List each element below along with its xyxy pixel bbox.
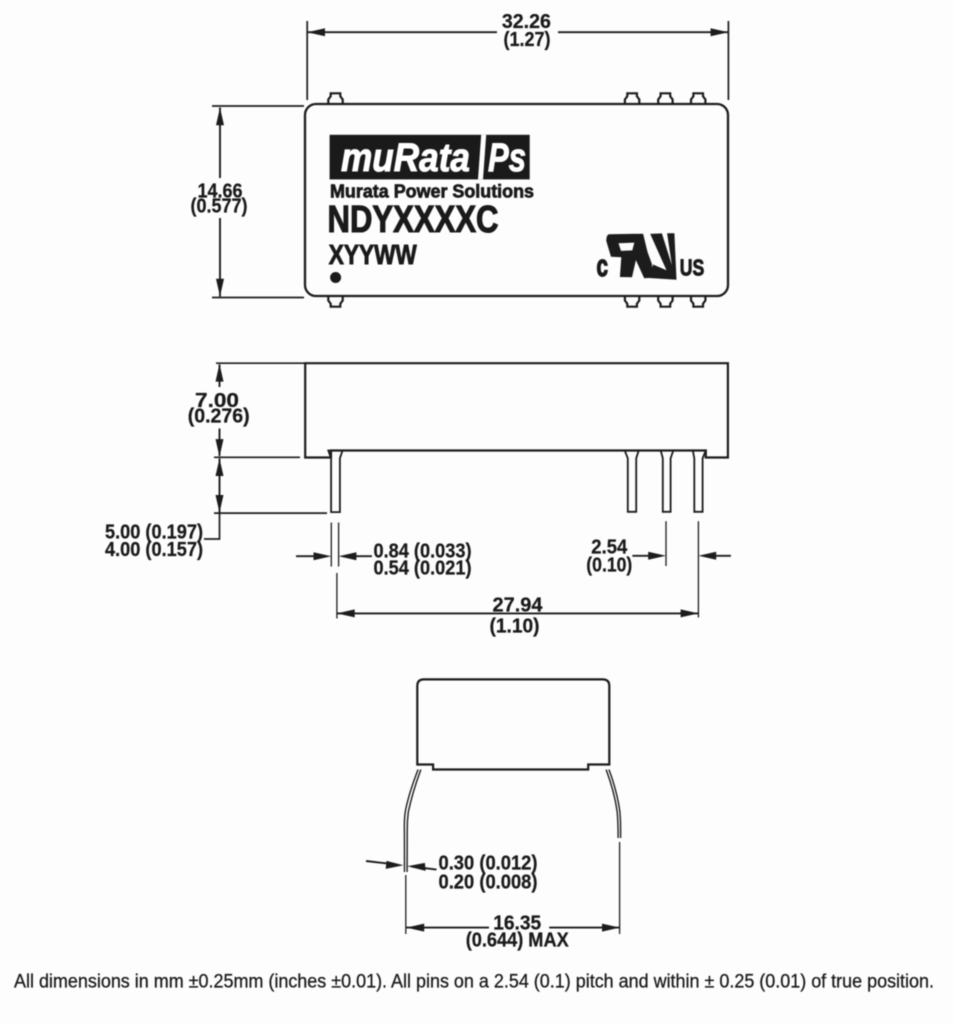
svg-text:0.20 (0.008): 0.20 (0.008) [439, 872, 538, 894]
svg-text:(1.27): (1.27) [504, 29, 551, 51]
svg-text:0.54 (0.021): 0.54 (0.021) [374, 558, 472, 580]
svg-text:c: c [597, 248, 609, 283]
svg-text:(0.644) MAX: (0.644) MAX [466, 930, 570, 952]
svg-text:Ps: Ps [488, 136, 526, 180]
svg-text:4.00 (0.157): 4.00 (0.157) [105, 539, 203, 561]
svg-text:27.94: 27.94 [493, 595, 544, 617]
svg-text:muRata: muRata [341, 136, 470, 180]
svg-text:(1.10): (1.10) [490, 616, 540, 638]
svg-text:All dimensions in mm ±0.25mm (: All dimensions in mm ±0.25mm (inches ±0.… [14, 971, 934, 993]
svg-text:US: US [680, 255, 705, 281]
svg-text:(0.276): (0.276) [188, 406, 250, 428]
svg-text:(0.577): (0.577) [191, 196, 248, 218]
svg-text:(0.10): (0.10) [586, 555, 632, 577]
svg-text:NDYXXXXC: NDYXXXXC [328, 199, 499, 241]
svg-text:XYYWW: XYYWW [329, 239, 417, 270]
